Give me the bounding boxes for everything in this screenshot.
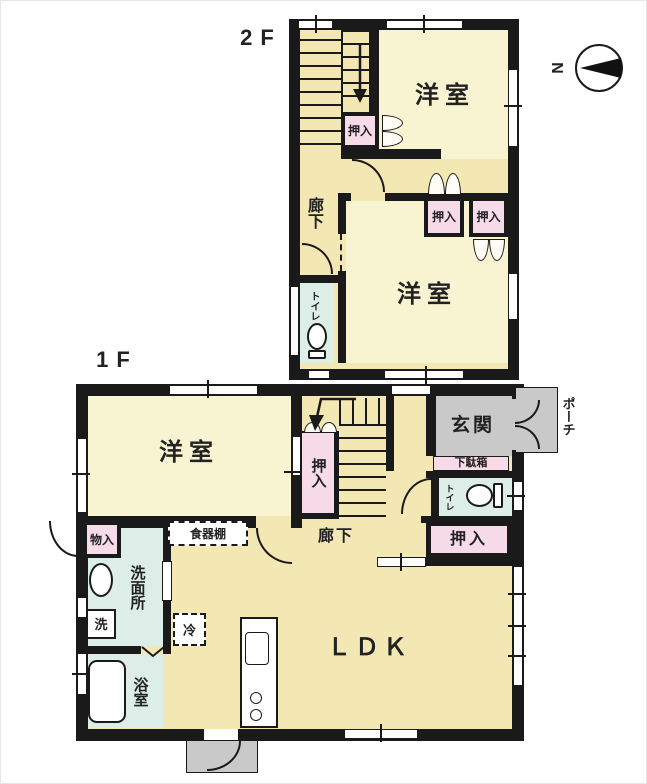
window: [508, 69, 518, 147]
window-tick: [380, 724, 382, 742]
folding-door-icon: [141, 646, 165, 658]
door-arc-storage: [49, 521, 78, 557]
wall: [386, 396, 394, 471]
stairs-down-arrow-1f: [304, 393, 358, 437]
window-tick: [508, 593, 526, 595]
window: [77, 438, 87, 513]
shoe-cabinet-label: 下駄箱: [434, 457, 508, 470]
wall: [292, 516, 302, 528]
window: [169, 385, 258, 395]
closet-2f-right: 押入: [469, 197, 508, 237]
toilet-bowl-icon: [307, 323, 327, 350]
window-tick: [72, 673, 90, 675]
window-tick: [423, 15, 425, 33]
window-tick: [508, 655, 526, 657]
sliding-door: [162, 561, 172, 601]
burner-icon: [250, 692, 262, 704]
window-tick: [504, 105, 522, 107]
window: [308, 370, 330, 379]
refrigerator-label: 冷: [183, 620, 196, 639]
window: [391, 385, 431, 395]
floor2-label: 2F: [231, 25, 291, 51]
washbasin-icon: [89, 563, 113, 597]
wall: [431, 478, 439, 516]
wall: [338, 271, 346, 363]
window: [77, 597, 87, 618]
open-doorway-dashed: [340, 234, 342, 271]
cupboard: 食器棚: [168, 521, 248, 546]
window-tick: [400, 553, 402, 571]
floor-plan: 2F 1F N 押入 押入 押入 洋室: [0, 0, 647, 784]
stairs-1f-run: [339, 424, 386, 524]
room-label-toilet-1f: トイレ: [442, 479, 456, 515]
storage-closet: 物入: [83, 521, 121, 558]
closet-2f-left: 押入: [424, 197, 464, 237]
compass-north-label: N: [550, 58, 568, 78]
back-door-opening: [204, 729, 238, 740]
cupboard-label: 食器棚: [190, 525, 226, 542]
closet-1f-hall: 押入: [426, 521, 512, 558]
room-label-hallway-1f: 廊下: [311, 527, 361, 547]
closet-2f-stairs: 押入: [341, 112, 379, 149]
room-label-toilet-2f: トイレ: [304, 285, 322, 327]
window-tick: [72, 473, 90, 475]
room-label-ldk: ＬＤＫ: [311, 633, 427, 663]
wall: [300, 275, 338, 283]
room-label-entrance: 玄関: [441, 413, 505, 437]
bifold-door-icon: [382, 115, 403, 147]
room-label-bedroom-1f: 洋室: [139, 438, 239, 468]
wall: [426, 471, 512, 478]
wall: [88, 646, 141, 654]
window: [290, 286, 299, 356]
room-label-porch: ポーチ: [558, 389, 578, 443]
closet-label: 押入: [431, 526, 507, 553]
storage-label: 物入: [87, 525, 117, 554]
room-label-hallway-2f: 廊下: [301, 187, 325, 239]
closet-label: 押入: [302, 433, 334, 513]
closet-panel: [292, 436, 301, 476]
window-tick: [507, 495, 525, 497]
stairs-2f-lower-run: [300, 39, 342, 151]
shoe-cabinet: 下駄箱: [433, 456, 509, 471]
window-tick: [207, 380, 209, 398]
closet-label: 押入: [428, 201, 460, 233]
window-tick: [315, 15, 317, 33]
closet-label: 押入: [345, 116, 375, 145]
wall: [426, 396, 436, 456]
burner-icon: [250, 709, 262, 721]
window-tick: [508, 625, 526, 627]
wall: [369, 30, 379, 112]
window-tick: [425, 366, 427, 384]
toilet-bowl-icon: [466, 484, 493, 507]
washing-machine-icon: 洗: [86, 609, 116, 639]
floor1-label: 1F: [87, 347, 147, 373]
room-label-bathroom: 浴室: [129, 663, 151, 721]
bifold-door-icon: [473, 239, 505, 261]
window: [384, 370, 464, 379]
toilet-tank-icon: [493, 483, 503, 508]
room-label-bedroom-2f-lower: 洋室: [377, 280, 477, 310]
wall: [338, 193, 346, 234]
toilet-tank-icon: [308, 350, 326, 359]
closet-label: 押入: [473, 201, 504, 233]
window-tick: [284, 471, 304, 473]
room-label-bedroom-2f-upper: 洋室: [395, 81, 495, 111]
washing-machine-label: 洗: [88, 611, 114, 637]
bifold-door-icon: [428, 173, 461, 195]
kitchen-sink-icon: [245, 632, 269, 665]
refrigerator: 冷: [173, 613, 206, 646]
wall: [426, 558, 512, 566]
room-label-washroom: 洗面所: [125, 541, 149, 633]
bathtub-icon: [88, 660, 126, 723]
closet-1f-stairs: 押入: [302, 431, 339, 519]
wall: [346, 193, 351, 201]
wall: [341, 149, 441, 159]
window: [508, 273, 518, 320]
